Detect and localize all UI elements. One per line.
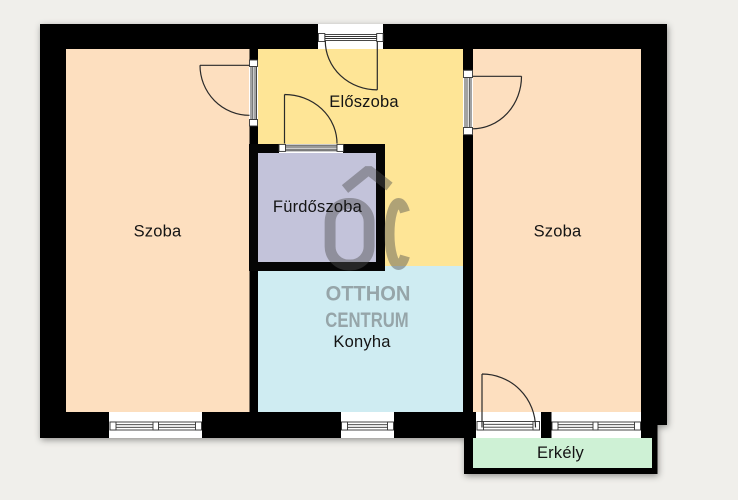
svg-text:Szoba: Szoba bbox=[534, 223, 582, 241]
svg-text:Erkély: Erkély bbox=[537, 444, 585, 462]
svg-text:Szoba: Szoba bbox=[134, 223, 182, 241]
svg-text:OTTHON: OTTHON bbox=[326, 282, 411, 306]
svg-text:CENTRUM: CENTRUM bbox=[325, 309, 408, 332]
svg-text:Előszoba: Előszoba bbox=[329, 93, 399, 111]
svg-text:Konyha: Konyha bbox=[333, 333, 391, 351]
svg-text:Fürdőszoba: Fürdőszoba bbox=[273, 198, 363, 216]
